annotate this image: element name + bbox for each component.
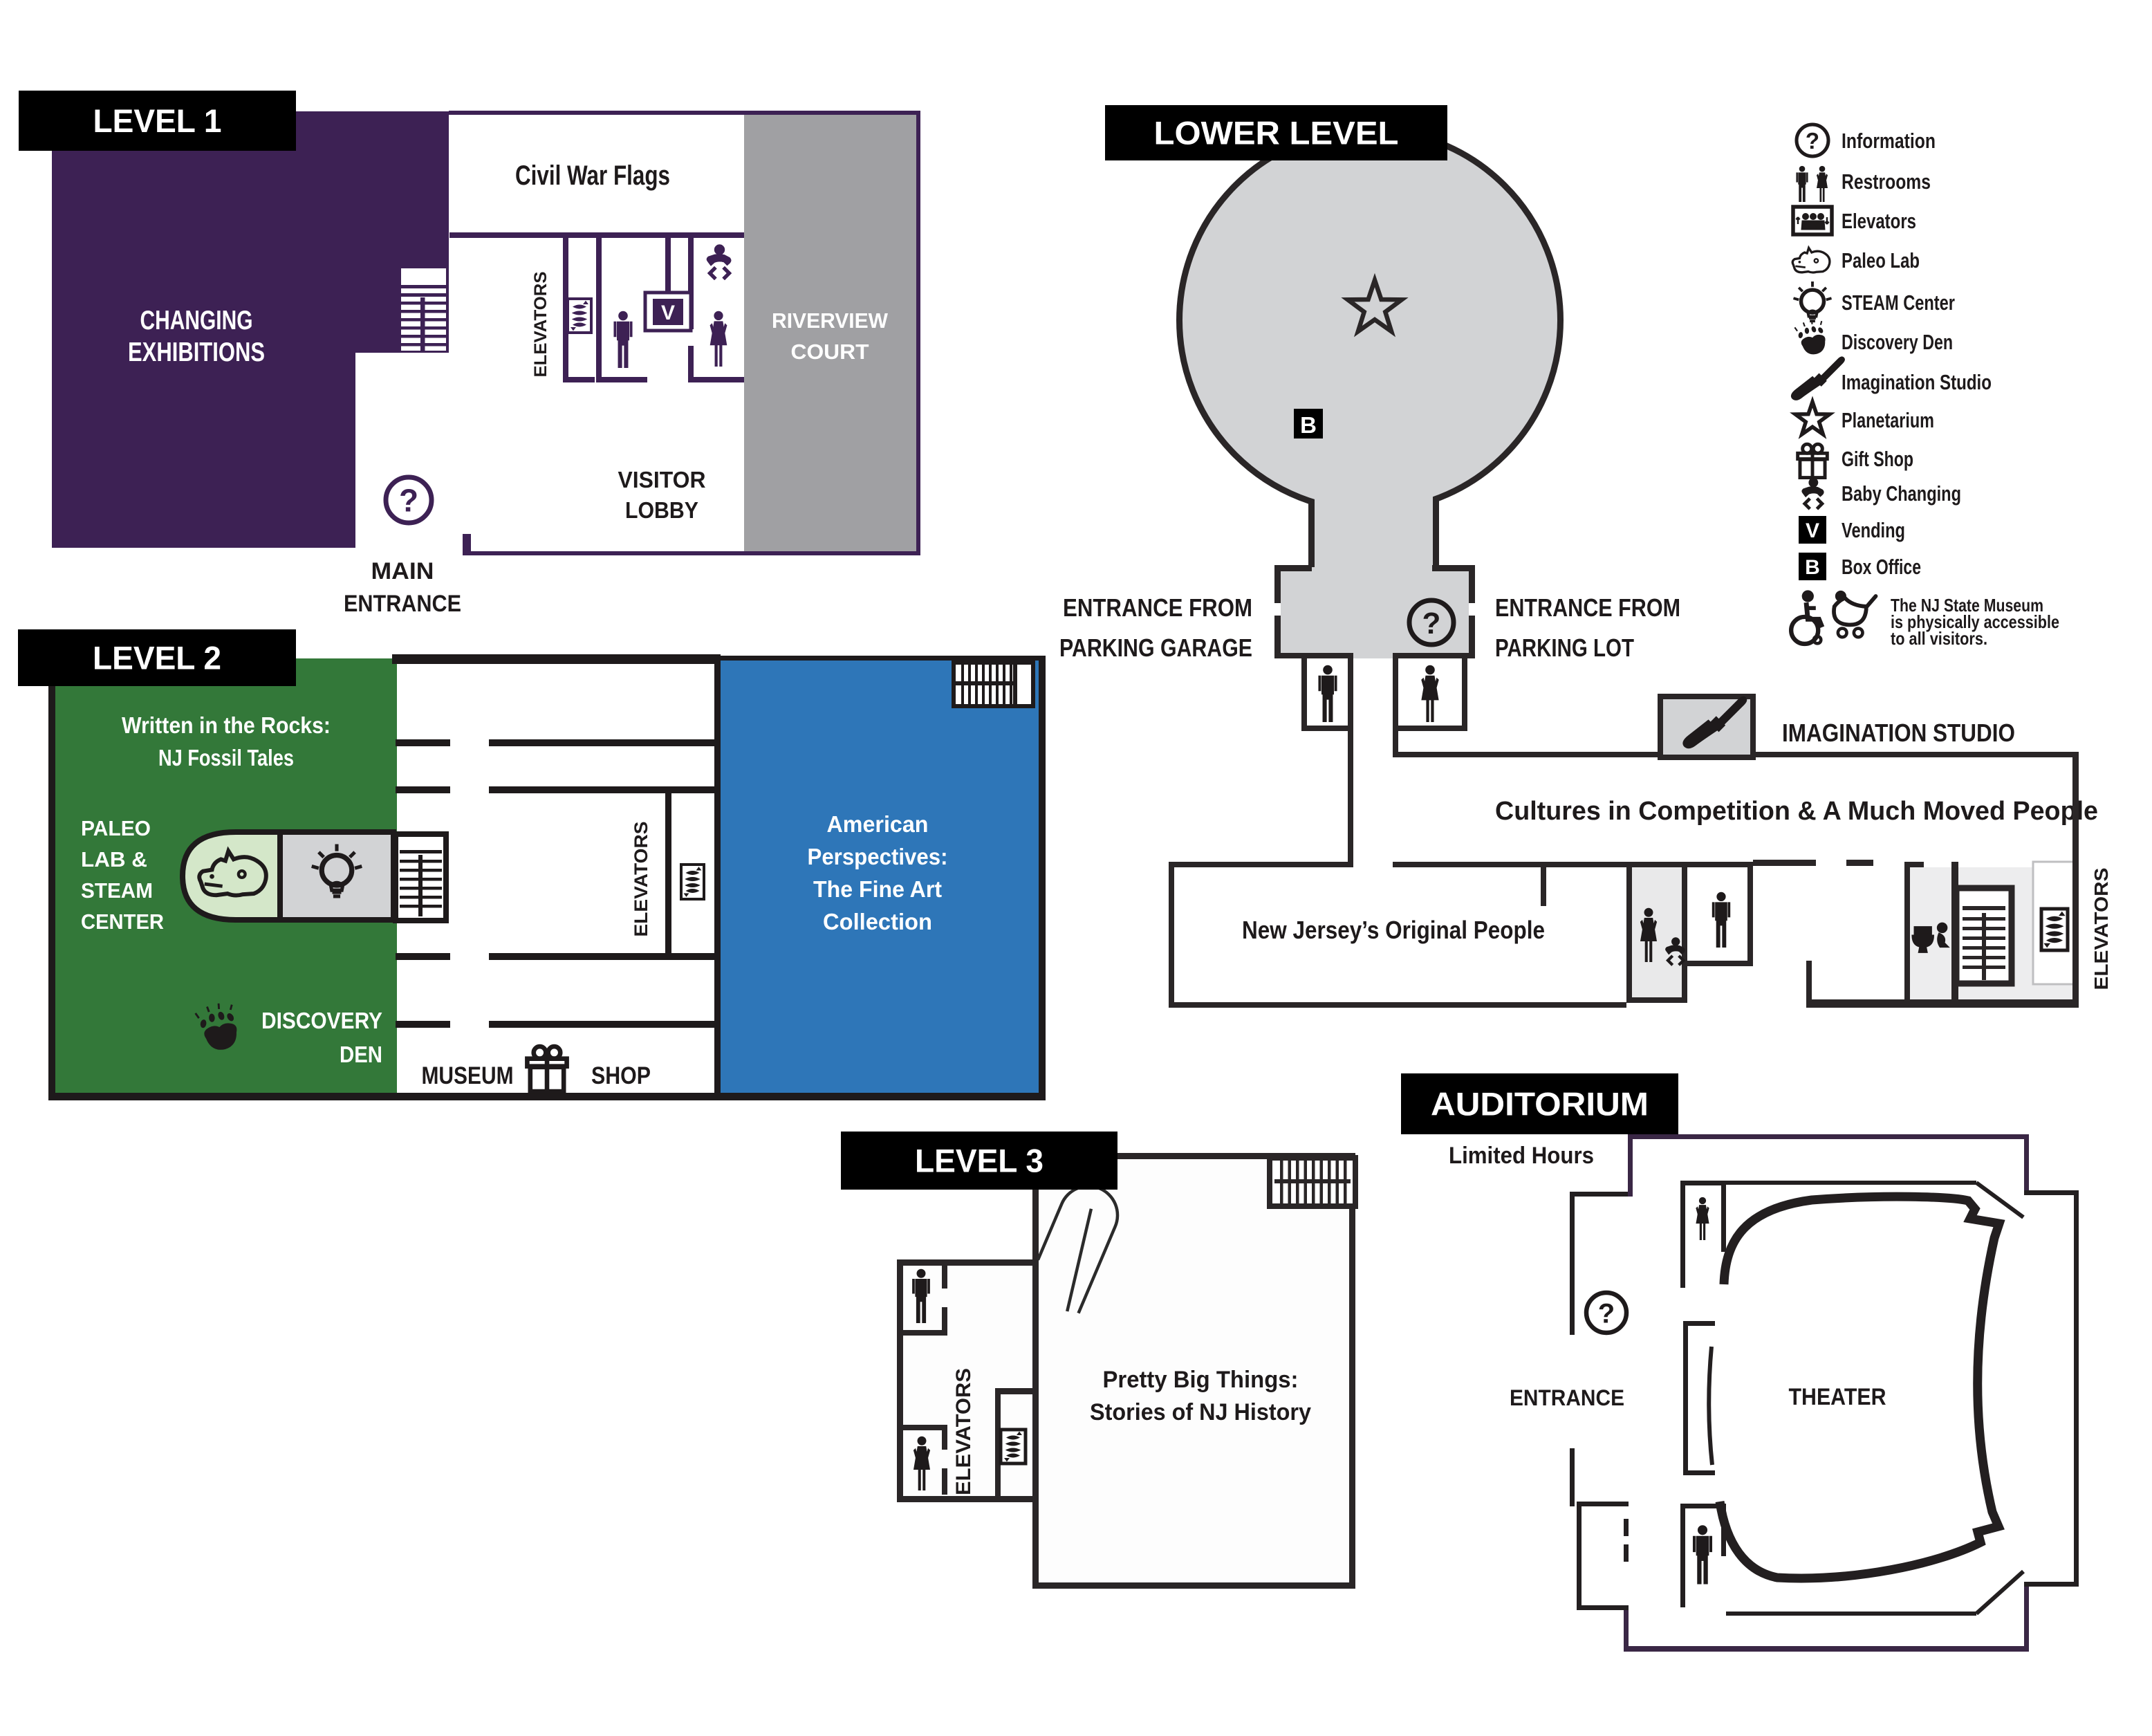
svg-text:Cultures in Competition & A Mu: Cultures in Competition & A Much Moved P… <box>1495 797 2098 826</box>
svg-text:Vending: Vending <box>1842 518 1905 542</box>
svg-text:New Jersey’s Original People: New Jersey’s Original People <box>1242 916 1545 944</box>
svg-text:THEATER: THEATER <box>1789 1384 1886 1410</box>
svg-text:American: American <box>827 811 929 837</box>
svg-text:Elevators: Elevators <box>1842 209 1916 233</box>
svg-text:Stories of NJ History: Stories of NJ History <box>1090 1399 1311 1425</box>
svg-text:V: V <box>661 302 675 324</box>
svg-text:Baby Changing: Baby Changing <box>1842 481 1961 506</box>
svg-text:Restrooms: Restrooms <box>1842 169 1931 194</box>
svg-text:ENTRANCE: ENTRANCE <box>1510 1385 1624 1410</box>
svg-text:Collection: Collection <box>823 909 932 934</box>
svg-text:Discovery Den: Discovery Den <box>1842 330 1953 354</box>
svg-text:ELEVATORS: ELEVATORS <box>2090 868 2112 990</box>
svg-text:DEN: DEN <box>340 1042 382 1067</box>
svg-text:STEAM: STEAM <box>81 878 153 903</box>
svg-text:LAB &: LAB & <box>81 847 147 871</box>
svg-text:V: V <box>1806 519 1819 542</box>
svg-text:Perspectives:: Perspectives: <box>808 844 948 869</box>
svg-text:B: B <box>1805 556 1820 579</box>
svg-text:?: ? <box>1598 1298 1615 1329</box>
svg-text:?: ? <box>399 483 418 519</box>
svg-text:?: ? <box>1806 128 1819 154</box>
svg-text:ENTRANCE FROM: ENTRANCE FROM <box>1495 593 1680 622</box>
svg-text:LEVEL 3: LEVEL 3 <box>915 1143 1043 1179</box>
svg-text:?: ? <box>1422 607 1441 640</box>
svg-text:RIVERVIEW: RIVERVIEW <box>772 308 889 333</box>
svg-text:Imagination Studio: Imagination Studio <box>1842 370 1992 394</box>
svg-text:AUDITORIUM: AUDITORIUM <box>1431 1086 1649 1123</box>
svg-text:B: B <box>1300 412 1317 438</box>
svg-text:LEVEL 1: LEVEL 1 <box>93 102 222 139</box>
svg-text:SHOP: SHOP <box>591 1062 651 1089</box>
svg-text:COURT: COURT <box>791 340 869 364</box>
svg-text:PALEO: PALEO <box>81 816 151 840</box>
svg-text:IMAGINATION STUDIO: IMAGINATION STUDIO <box>1782 719 2015 747</box>
svg-text:Civil War Flags: Civil War Flags <box>515 160 670 191</box>
svg-text:STEAM Center: STEAM Center <box>1842 290 1955 315</box>
svg-text:to all visitors.: to all visitors. <box>1891 628 1987 649</box>
svg-text:Gift Shop: Gift Shop <box>1842 447 1913 471</box>
svg-text:Limited Hours: Limited Hours <box>1449 1143 1594 1169</box>
svg-text:ENTRANCE: ENTRANCE <box>344 591 461 617</box>
svg-text:NJ Fossil Tales: NJ Fossil Tales <box>158 745 294 770</box>
svg-text:ENTRANCE FROM: ENTRANCE FROM <box>1063 593 1252 622</box>
svg-text:EXHIBITIONS: EXHIBITIONS <box>128 338 265 367</box>
svg-text:Pretty Big Things:: Pretty Big Things: <box>1103 1367 1299 1393</box>
svg-text:ELEVATORS: ELEVATORS <box>952 1368 975 1495</box>
svg-text:CHANGING: CHANGING <box>140 306 253 335</box>
svg-text:PARKING GARAGE: PARKING GARAGE <box>1059 634 1252 662</box>
svg-text:ELEVATORS: ELEVATORS <box>631 822 651 937</box>
svg-text:LOBBY: LOBBY <box>625 497 698 523</box>
svg-text:MUSEUM: MUSEUM <box>422 1062 514 1089</box>
svg-text:Written in the Rocks:: Written in the Rocks: <box>122 712 331 738</box>
svg-text:Box Office: Box Office <box>1842 555 1921 579</box>
svg-text:DISCOVERY: DISCOVERY <box>261 1008 382 1033</box>
svg-text:ELEVATORS: ELEVATORS <box>531 272 550 378</box>
svg-text:LEVEL 2: LEVEL 2 <box>93 640 221 676</box>
svg-text:VISITOR: VISITOR <box>618 467 706 492</box>
svg-text:LOWER LEVEL: LOWER LEVEL <box>1154 115 1399 151</box>
svg-text:The Fine Art: The Fine Art <box>813 876 942 902</box>
svg-text:PARKING LOT: PARKING LOT <box>1495 634 1634 662</box>
svg-text:Planetarium: Planetarium <box>1842 408 1934 432</box>
svg-text:CENTER: CENTER <box>81 909 164 934</box>
svg-text:MAIN: MAIN <box>371 558 434 584</box>
svg-text:Paleo Lab: Paleo Lab <box>1842 248 1920 273</box>
svg-text:Information: Information <box>1842 129 1936 153</box>
